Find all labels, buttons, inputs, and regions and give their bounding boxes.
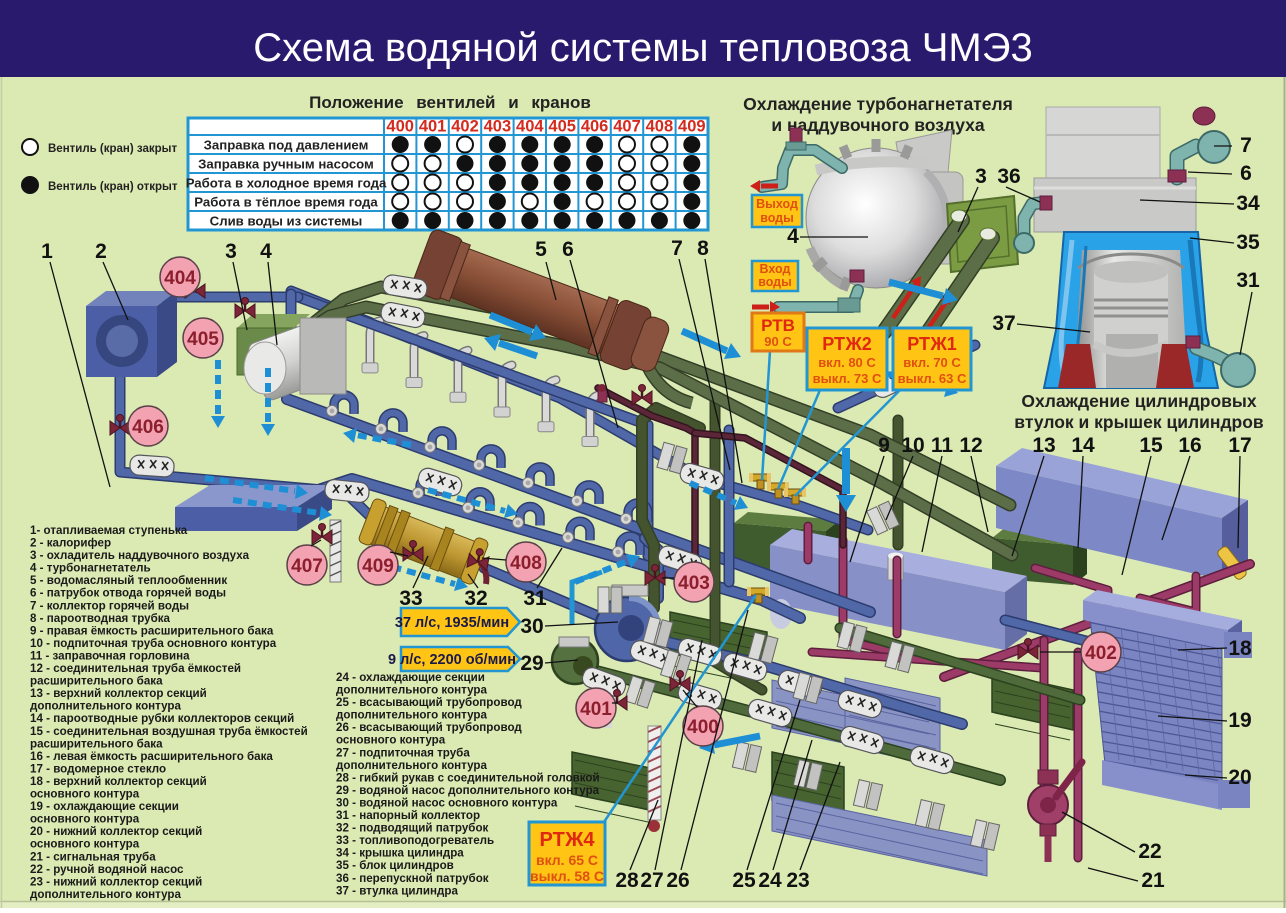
svg-text:403: 403 (678, 573, 710, 594)
svg-text:408: 408 (646, 118, 674, 136)
svg-text:4: 4 (260, 240, 272, 263)
svg-text:Работа в холодное время го: Работа в холодное время года (186, 176, 387, 191)
svg-text:дополнительного контура: дополнительного контура (336, 759, 487, 772)
svg-text:407: 407 (613, 118, 641, 136)
svg-text:21 - сигнальная труба: 21 - сигнальная труба (30, 850, 156, 863)
svg-text:Вентиль (кран) открыт: Вентиль (кран) открыт (48, 181, 178, 193)
svg-text:основного контура: основного контура (30, 838, 140, 851)
svg-text:11: 11 (931, 434, 954, 457)
svg-text:Слив воды из системы: Слив воды из системы (210, 214, 363, 229)
svg-text:36 - перепускной патрубок: 36 - перепускной патрубок (336, 872, 489, 885)
svg-text:дополнительного контура: дополнительного контура (30, 888, 181, 901)
svg-text:Схема водяной системы тепловоз: Схема водяной системы тепловоза ЧМЭ3 (253, 26, 1032, 70)
svg-text:основного контура: основного контура (30, 788, 140, 801)
svg-text:16: 16 (1178, 434, 1201, 457)
svg-text:3: 3 (975, 165, 987, 188)
svg-text:29: 29 (520, 652, 543, 675)
svg-text:8: 8 (697, 237, 709, 260)
svg-text:406: 406 (132, 417, 164, 438)
svg-text:16 - левая ёмкость расширите: 16 - левая ёмкость расширительного бака (30, 750, 273, 763)
svg-text:7: 7 (671, 237, 683, 260)
svg-text:23 - нижний коллектор секций: 23 - нижний коллектор секций (30, 875, 202, 888)
svg-text:воды: воды (758, 275, 792, 289)
svg-text:31 - напорный коллектор: 31 - напорный коллектор (336, 809, 480, 822)
svg-text:24 - охлаждающие секции: 24 - охлаждающие секции (336, 671, 485, 684)
svg-text:406: 406 (581, 118, 609, 136)
svg-text:12: 12 (959, 434, 982, 457)
svg-text:25: 25 (732, 869, 756, 892)
svg-text:8 - пароотводная трубка: 8 - пароотводная трубка (30, 612, 171, 625)
svg-text:дополнительного контура: дополнительного контура (336, 709, 487, 722)
svg-text:6: 6 (1240, 162, 1252, 185)
svg-text:17 - водомерное стекло: 17 - водомерное стекло (30, 762, 166, 775)
svg-text:34 - крышка цилиндра: 34 - крышка цилиндра (336, 847, 464, 860)
svg-text:27 - подпиточная труба: 27 - подпиточная труба (336, 746, 470, 759)
svg-text:11 - заправочная горловина: 11 - заправочная горловина (30, 650, 190, 663)
svg-text:33: 33 (399, 587, 422, 610)
svg-text:4: 4 (787, 225, 799, 248)
svg-text:7 - коллектор горячей воды: 7 - коллектор горячей воды (30, 599, 189, 612)
svg-text:404: 404 (164, 268, 196, 289)
svg-text:3 - охладитель наддувочного: 3 - охладитель наддувочного воздуха (30, 549, 250, 562)
svg-text:407: 407 (291, 556, 323, 577)
svg-text:34: 34 (1236, 192, 1260, 215)
svg-text:17: 17 (1228, 434, 1251, 457)
svg-text:дополнительного контура: дополнительного контура (30, 700, 181, 713)
svg-text:12 - соединительная труба ём: 12 - соединительная труба ёмкостей (30, 662, 241, 675)
svg-text:выкл. 63 С: выкл. 63 С (898, 371, 967, 386)
svg-text:Охлаждение цилиндровых: Охлаждение цилиндровых (1021, 391, 1257, 411)
svg-text:14 - пароотводные рубки колл: 14 - пароотводные рубки коллекторов секц… (30, 712, 294, 725)
svg-text:18 - верхний коллектор секци: 18 - верхний коллектор секций (30, 775, 207, 788)
svg-text:10: 10 (901, 434, 924, 457)
svg-text:вкл. 65 С: вкл. 65 С (536, 852, 598, 868)
svg-text:31: 31 (523, 587, 547, 610)
svg-text:19: 19 (1228, 709, 1251, 732)
svg-text:и наддувочного воздуха: и наддувочного воздуха (771, 115, 985, 135)
svg-text:24: 24 (758, 869, 782, 892)
svg-text:5: 5 (535, 238, 547, 261)
svg-text:20: 20 (1228, 766, 1251, 789)
svg-text:Работа в тёплое время года: Работа в тёплое время года (194, 195, 378, 210)
svg-text:37: 37 (992, 312, 1015, 335)
svg-text:втулок и крышек цилиндров: втулок и крышек цилиндров (1014, 412, 1264, 432)
svg-text:28 - гибкий рукав с соедини: 28 - гибкий рукав с соединительной голов… (336, 771, 600, 784)
svg-text:7: 7 (1240, 134, 1252, 157)
svg-text:32: 32 (464, 587, 487, 610)
svg-text:405: 405 (187, 329, 219, 350)
svg-text:2 - калорифер: 2 - калорифер (30, 537, 111, 550)
svg-text:20 - нижний коллектор секций: 20 - нижний коллектор секций (30, 825, 202, 838)
svg-text:3: 3 (225, 240, 237, 263)
svg-text:2: 2 (95, 240, 107, 263)
svg-text:35 - блок цилиндров: 35 - блок цилиндров (336, 859, 454, 872)
svg-text:90 С: 90 С (764, 334, 792, 349)
svg-text:37 л/с, 1935/мин: 37 л/с, 1935/мин (395, 615, 509, 631)
svg-text:25 - всасывающий трубопровод: 25 - всасывающий трубопровод (336, 696, 522, 709)
svg-text:Охлаждение турбонагнетателя: Охлаждение турбонагнетателя (743, 94, 1013, 114)
svg-text:33 - топливоподогреватель: 33 - топливоподогреватель (336, 834, 494, 847)
svg-text:401: 401 (419, 118, 447, 136)
svg-text:36: 36 (997, 165, 1020, 188)
svg-text:26 - всасывающий трубопровод: 26 - всасывающий трубопровод (336, 721, 522, 734)
svg-text:дополнительного контура: дополнительного контура (336, 684, 487, 697)
svg-text:вкл. 80 С: вкл. 80 С (818, 355, 876, 370)
svg-text:Вход: Вход (760, 262, 791, 276)
svg-text:37 - втулка цилиндра: 37 - втулка цилиндра (336, 884, 458, 897)
svg-text:14: 14 (1071, 434, 1095, 457)
svg-text:29 - водяной насос дополните: 29 - водяной насос дополнительного конту… (336, 784, 600, 797)
svg-text:30 - водяной насос основного: 30 - водяной насос основного контура (336, 797, 558, 810)
svg-text:32 - подводящий патрубок: 32 - подводящий патрубок (336, 822, 489, 835)
svg-text:35: 35 (1236, 231, 1260, 254)
svg-text:РТЖ4: РТЖ4 (540, 829, 596, 851)
svg-text:основного контура: основного контура (336, 734, 446, 747)
svg-text:409: 409 (678, 118, 706, 136)
svg-text:23: 23 (786, 869, 809, 892)
svg-text:28: 28 (615, 869, 639, 892)
svg-text:13 - верхний коллектор секци: 13 - верхний коллектор секций (30, 687, 207, 700)
svg-text:1: 1 (41, 240, 53, 263)
svg-text:27: 27 (640, 869, 663, 892)
svg-text:408: 408 (510, 553, 542, 574)
svg-text:31: 31 (1236, 269, 1260, 292)
svg-text:Положение вентилей и кранов: Положение вентилей и кранов (309, 93, 591, 112)
svg-text:402: 402 (1085, 643, 1117, 664)
svg-text:Вентиль (кран) закрыт: Вентиль (кран) закрыт (48, 143, 177, 155)
svg-text:расширительного бака: расширительного бака (30, 737, 163, 750)
svg-text:15: 15 (1139, 434, 1163, 457)
svg-text:воды: воды (760, 211, 794, 225)
svg-text:6: 6 (562, 238, 574, 261)
svg-text:РТЖ2: РТЖ2 (822, 334, 872, 354)
svg-text:26: 26 (666, 869, 689, 892)
svg-text:основного контура: основного контура (30, 813, 140, 826)
svg-text:405: 405 (548, 118, 576, 136)
svg-text:10 - подпиточная труба основ: 10 - подпиточная труба основного контура (30, 637, 277, 650)
svg-text:401: 401 (580, 699, 612, 720)
svg-text:1- отапливаемая ступенька: 1- отапливаемая ступенька (30, 524, 188, 537)
svg-text:6 - патрубок отвода горячей: 6 - патрубок отвода горячей воды (30, 587, 226, 600)
svg-text:22: 22 (1138, 840, 1161, 863)
svg-text:13: 13 (1032, 434, 1055, 457)
svg-text:РТЖ1: РТЖ1 (907, 334, 957, 354)
svg-text:9: 9 (878, 434, 890, 457)
svg-text:РТВ: РТВ (761, 316, 795, 335)
svg-text:выкл. 73 С: выкл. 73 С (813, 371, 882, 386)
svg-text:выкл. 58 С: выкл. 58 С (530, 868, 604, 884)
svg-text:18: 18 (1228, 637, 1252, 660)
svg-text:Выход: Выход (756, 197, 798, 211)
svg-text:19 - охлаждающие секции: 19 - охлаждающие секции (30, 800, 179, 813)
svg-text:409: 409 (362, 556, 394, 577)
svg-text:9 л/с, 2200 об/мин: 9 л/с, 2200 об/мин (388, 652, 516, 668)
svg-text:15 - соединительная воздушная: 15 - соединительная воздушная труба ёмко… (30, 725, 308, 738)
svg-text:Заправка ручным насосом: Заправка ручным насосом (198, 157, 374, 172)
svg-text:21: 21 (1141, 869, 1165, 892)
svg-text:400: 400 (687, 717, 719, 738)
svg-text:4 - турбонагнетатель: 4 - турбонагнетатель (30, 562, 151, 575)
svg-text:Заправка под давлением: Заправка под давлением (204, 138, 369, 153)
svg-text:5 - водомасляный теплообменни: 5 - водомасляный теплообменник (30, 574, 227, 587)
svg-text:22 - ручной водяной насос: 22 - ручной водяной насос (30, 863, 184, 876)
svg-text:404: 404 (516, 118, 544, 136)
svg-text:вкл. 70 С: вкл. 70 С (903, 355, 961, 370)
svg-text:расширительного бака: расширительного бака (30, 675, 163, 688)
svg-text:400: 400 (386, 118, 414, 136)
svg-text:402: 402 (451, 118, 479, 136)
svg-text:30: 30 (520, 615, 543, 638)
svg-text:403: 403 (484, 118, 512, 136)
svg-text:9 - правая ёмкость расширите: 9 - правая ёмкость расширительного бака (30, 624, 274, 637)
